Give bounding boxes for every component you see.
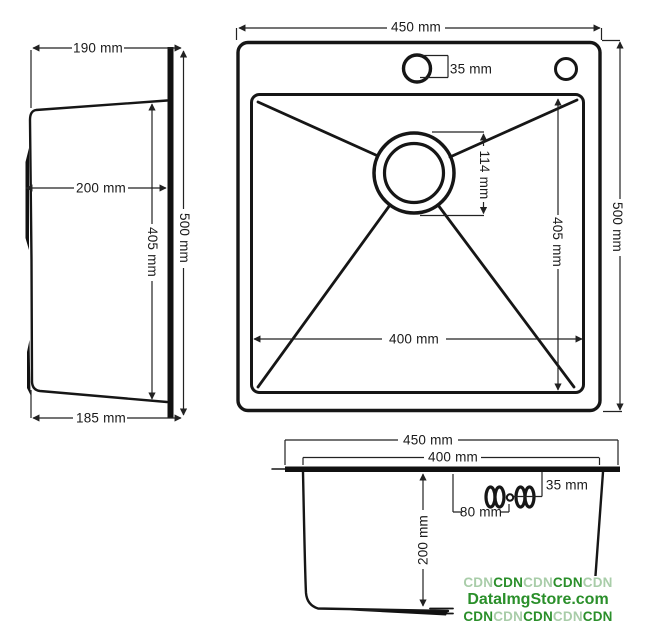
plan-inner-width-label: 400 mm: [389, 332, 439, 346]
side-top-width-label: 190 mm: [73, 41, 123, 55]
side-bottom-width-label: 185 mm: [76, 411, 126, 425]
side-clip-lower: [27, 340, 31, 395]
watermark-cdn: CDN: [463, 609, 493, 624]
watermark-cdn: CDN: [583, 609, 613, 624]
section-inner-width-label: 400 mm: [428, 450, 478, 464]
watermark-cdn: CDN: [523, 609, 553, 624]
watermark-site-name: DataImgStore.com: [458, 592, 618, 608]
section-rim-bar: [285, 467, 620, 473]
watermark-cdn: CDN: [583, 575, 613, 590]
section-bowl-depth-label: 200 mm: [416, 515, 430, 565]
plan-faucet-hole-label: 35 mm: [450, 62, 492, 76]
section-faucet-offset-label: 80 mm: [460, 505, 502, 519]
watermark-cdn: CDN: [523, 575, 553, 590]
watermark-cdn: CDN: [493, 575, 523, 590]
watermark-line-1: CDNCDNCDNCDNCDN: [458, 576, 618, 590]
watermark-cdn: CDN: [493, 609, 523, 624]
plan-outer-rim: [238, 43, 600, 411]
plan-drain-inner: [385, 144, 444, 203]
side-clip-upper: [26, 148, 30, 250]
side-view-dimension-lines: [26, 48, 184, 418]
plan-inner-length-label: 405 mm: [550, 217, 564, 267]
plan-bowl-edge: [252, 95, 584, 393]
plan-overall-width-label: 450 mm: [391, 20, 441, 34]
sink-dimension-drawing: 190 mm 200 mm 405 mm 500 mm 185 mm 450 m…: [0, 0, 648, 640]
watermark-cdn: CDN: [553, 575, 583, 590]
watermark-cdn: CDN: [463, 575, 493, 590]
section-bowl-bottom-taper: [350, 611, 448, 616]
plan-accessory-hole: [556, 59, 577, 80]
drawing-canvas: [0, 0, 648, 640]
watermark: CDNCDNCDNCDNCDN DataImgStore.com CDNCDNC…: [458, 576, 618, 623]
plan-overall-length-label: 500 mm: [610, 202, 624, 252]
side-overall-height-label: 500 mm: [177, 213, 191, 263]
section-overall-width-label: 450 mm: [403, 433, 453, 447]
side-inner-height-label: 405 mm: [145, 227, 159, 277]
plan-drain-diameter-label: 114 mm: [477, 151, 491, 200]
watermark-line-3: CDNCDNCDNCDNCDN: [458, 610, 618, 624]
side-bowl-depth-label: 200 mm: [76, 181, 126, 195]
plan-view-outline: [238, 43, 600, 411]
watermark-cdn: CDN: [553, 609, 583, 624]
section-faucet-hole-label: 35 mm: [546, 478, 588, 492]
